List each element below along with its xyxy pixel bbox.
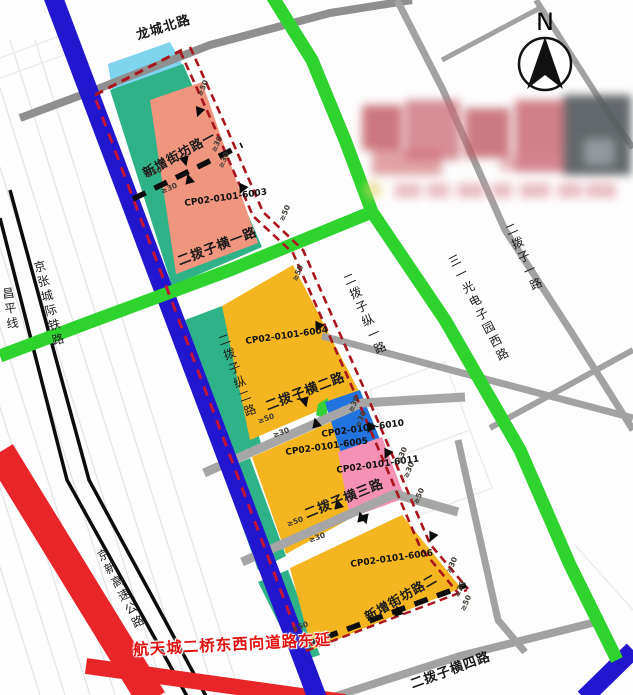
north-label: N (536, 10, 554, 34)
planning-map: N 龙城北路 二拨子一路 三一光电子园西路 京张城际铁路 昌平线 京新高速公路 … (0, 0, 633, 695)
north-arrow (519, 37, 571, 90)
map-canvas (0, 0, 633, 695)
